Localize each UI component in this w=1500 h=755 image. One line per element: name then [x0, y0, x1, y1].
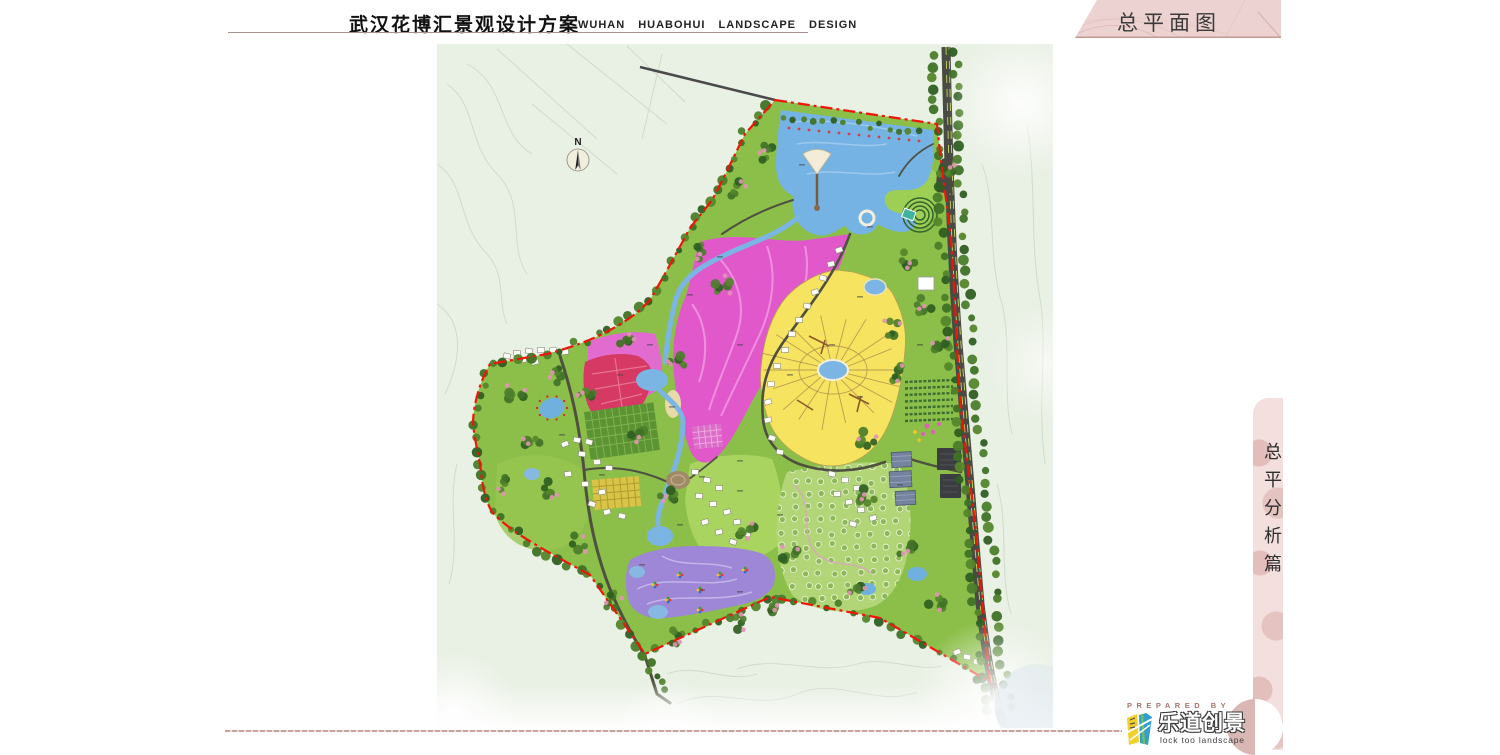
company-logo-subtitle: lock too landscape [1160, 735, 1245, 745]
company-logo-name: 乐道创景 [1158, 707, 1246, 737]
section-banner: 总平面图 [1075, 0, 1281, 38]
side-ribbon: 总平分析篇 [1253, 398, 1283, 750]
page-subtitle: WUHAN HUABOHUI LANDSCAPE DESIGN [578, 19, 857, 31]
side-ribbon-label: 总平分析篇 [1259, 442, 1285, 582]
master-plan-map: N [437, 44, 1053, 728]
banner-label: 总平面图 [1117, 7, 1221, 37]
header-rule [228, 32, 808, 33]
footer-rule [225, 730, 1122, 732]
svg-text:N: N [574, 137, 581, 148]
company-logo-icon [1126, 712, 1156, 746]
presentation-slide: { "header": { "title_cn": "武汉花博汇景观设计方案",… [0, 0, 1500, 750]
